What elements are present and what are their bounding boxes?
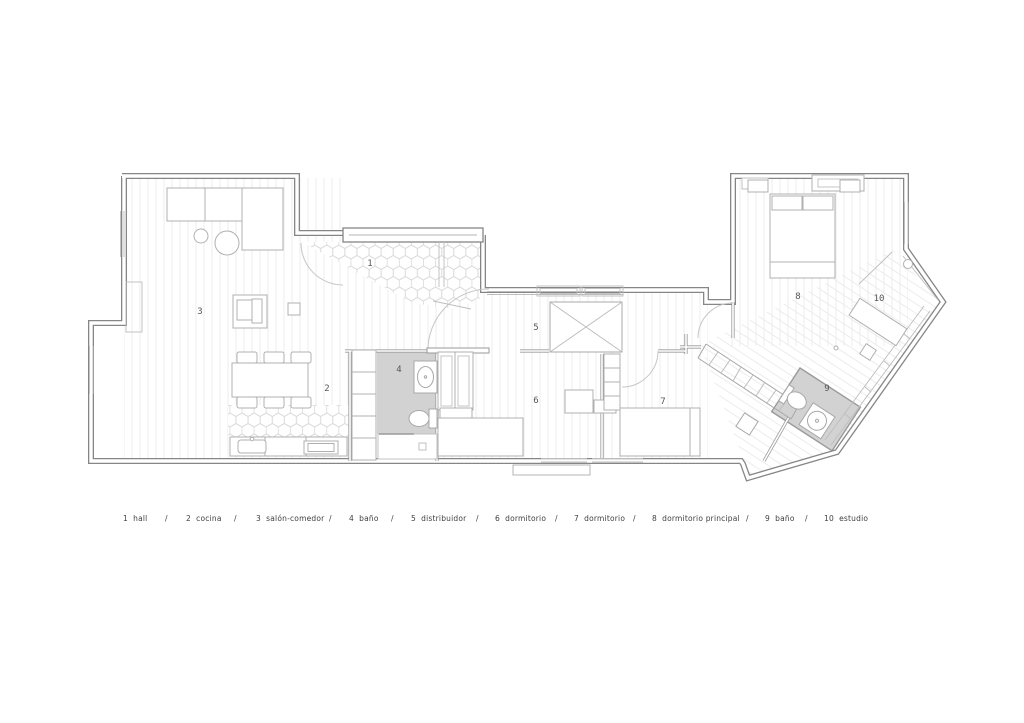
dining-table [232, 363, 308, 397]
washbasin-drain [424, 376, 426, 378]
legend-item-salon: 3 salón-comedor [256, 514, 325, 523]
dining-chair [237, 352, 257, 363]
legend-separator: / [633, 514, 636, 523]
faucet-icon [250, 437, 254, 441]
master-pillow-left [772, 196, 802, 210]
bedroom6-bed [438, 418, 523, 456]
legend-separator: / [805, 514, 808, 523]
room-label-hall: 1 [367, 259, 372, 269]
dining-chair [237, 397, 257, 408]
side-table-small [194, 229, 208, 243]
wardrobe-panel [441, 356, 452, 406]
legend-separator: / [476, 514, 479, 523]
legend-separator: / [165, 514, 168, 523]
dining-chair [291, 397, 311, 408]
legend-separator: / [555, 514, 558, 523]
legend-item-bano4: 4 baño [349, 514, 379, 523]
legend-separator: / [746, 514, 749, 523]
legend: 1 hall / 2 cocina / 3 salón-comedor / 4 … [123, 514, 868, 523]
legend-item-cocina: 2 cocina [186, 514, 222, 523]
side-table-square [288, 303, 300, 315]
room-label-distribuidor: 5 [533, 323, 538, 333]
stove-inner [308, 444, 334, 452]
kitchen-dining-furniture [230, 350, 376, 460]
room-label-cocina: 2 [324, 384, 329, 394]
dining-chair [264, 397, 284, 408]
legend-separator: / [391, 514, 394, 523]
facade-sill-bump [513, 465, 590, 475]
room-label-principal: 8 [795, 292, 800, 302]
tall-cabinet-column [352, 350, 376, 460]
room-label-salon: 3 [197, 307, 202, 317]
armchair-arm [252, 299, 262, 323]
legend-separator: / [234, 514, 237, 523]
toilet-icon [409, 411, 429, 427]
legend-item-estudio: 10 estudio [824, 514, 868, 523]
kitchen-hex-tile-floor [228, 405, 349, 437]
master-pillow-right [803, 196, 833, 210]
room-label-dormitorio6: 6 [533, 396, 538, 406]
bedroom7-bed [620, 408, 700, 456]
corridor-closet [550, 302, 622, 352]
room-label-bano9: 9 [824, 384, 829, 394]
kitchen-sink-icon [238, 440, 266, 453]
nightstand-left [748, 180, 768, 192]
bedroom6-desk [565, 390, 593, 413]
legend-item-principal: 8 dormitorio principal [652, 514, 740, 523]
room-label-estudio: 10 [874, 294, 885, 304]
shower-area [378, 434, 437, 459]
legend-item-distribuidor: 5 distribuidor [411, 514, 467, 523]
sofa-chaise [242, 188, 283, 250]
room-label-dormitorio7: 7 [660, 397, 665, 407]
floor-plan-drawing: 1 2 3 4 5 6 7 8 9 10 1 hall / 2 cocina /… [0, 0, 1024, 723]
legend-separator: / [329, 514, 332, 523]
floor-plan-page: 1 2 3 4 5 6 7 8 9 10 1 hall / 2 cocina /… [0, 0, 1024, 723]
toilet-tank [429, 409, 437, 428]
floor-dot [834, 346, 838, 350]
legend-item-bano9: 9 baño [765, 514, 795, 523]
facade-column [904, 260, 913, 269]
nightstand-right [840, 180, 860, 192]
dining-chair [264, 352, 284, 363]
legend-item-hall: 1 hall [123, 514, 147, 523]
shower-drain [419, 443, 426, 450]
legend-item-dormitorio6: 6 dormitorio [495, 514, 546, 523]
coffee-table [215, 231, 239, 255]
room-label-bano4: 4 [396, 365, 401, 375]
dining-chair [291, 352, 311, 363]
wardrobe-panel [458, 356, 469, 406]
legend-item-dormitorio7: 7 dormitorio [574, 514, 625, 523]
